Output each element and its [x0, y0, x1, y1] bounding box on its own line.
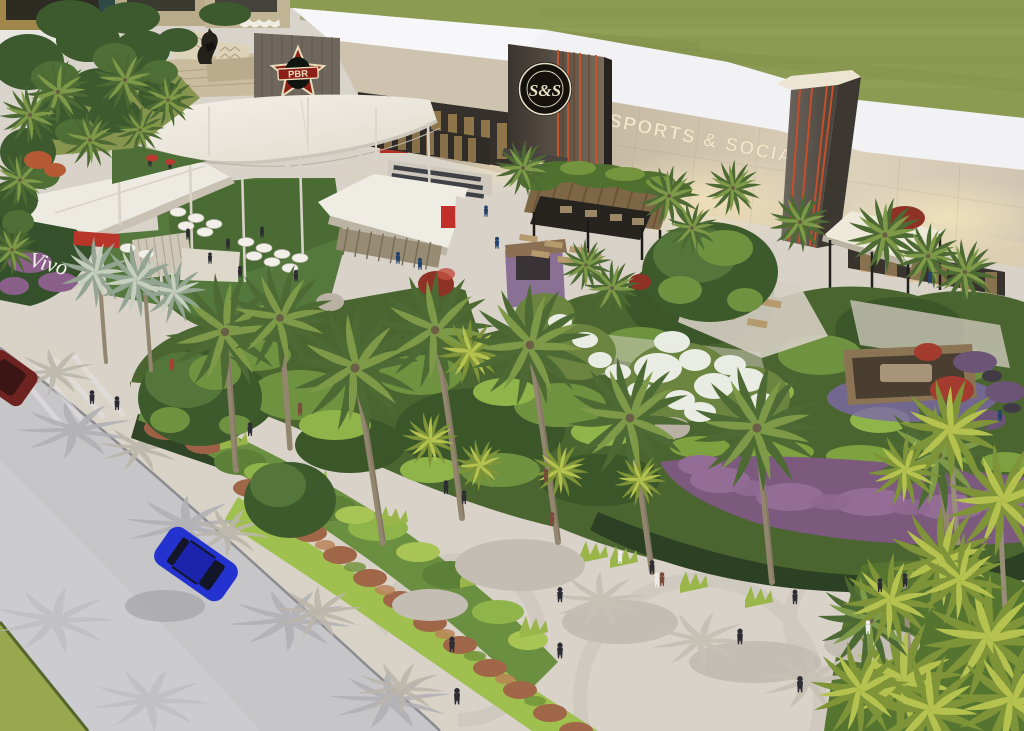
svg-text:S&S: S&S [529, 81, 561, 100]
svg-text:PBR: PBR [288, 68, 309, 80]
